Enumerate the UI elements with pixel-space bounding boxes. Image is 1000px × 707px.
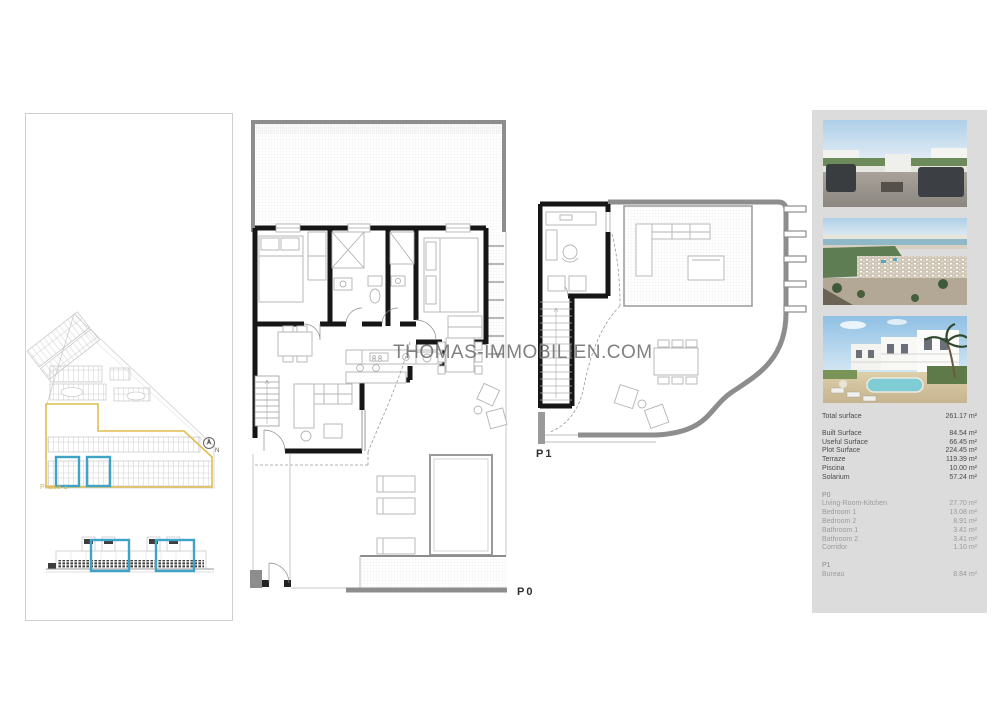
- row-label: Bedroom 1: [822, 509, 856, 518]
- p0-stairs: [255, 376, 279, 426]
- row-label: Total surface: [822, 413, 862, 422]
- site-plan-drawing: N: [26, 304, 232, 604]
- table-row: Built Surface 84.54 m²: [822, 430, 977, 439]
- table-row: Solarium 57.24 m²: [822, 474, 977, 483]
- roof-terrace-photo: [823, 120, 967, 207]
- row-value: 13.08 m²: [949, 509, 977, 518]
- row-value: 261.17 m²: [945, 413, 977, 422]
- row-label: Plot Surface: [822, 447, 860, 456]
- table-row: Total surface 261.17 m²: [822, 413, 977, 422]
- table-row: Bedroom 1 13.08 m²: [822, 509, 977, 518]
- p0-furniture: [259, 232, 482, 441]
- row-label: Built Surface: [822, 430, 862, 439]
- table-row: Living-Room-Kitchen 27.70 m²: [822, 500, 977, 509]
- aerial-coast-photo: [823, 218, 967, 305]
- surface-table: Total surface 261.17 m² Built Surface 84…: [822, 413, 977, 580]
- watermark: THOMAS-IMMOBILIEN.COM: [393, 342, 653, 364]
- row-value: 10.00 m²: [949, 465, 977, 474]
- row-value: 3.41 m²: [953, 527, 977, 536]
- row-label: Piscina: [822, 465, 845, 474]
- row-label: Bedroom 2: [822, 518, 856, 527]
- row-value: 3.41 m²: [953, 536, 977, 545]
- row-value: 8.91 m²: [953, 518, 977, 527]
- p0-pool: [430, 455, 492, 555]
- row-label: Corridor: [822, 544, 847, 553]
- table-row: Bathroom 2 3.41 m²: [822, 536, 977, 545]
- table-row: Useful Surface 66.45 m²: [822, 439, 977, 448]
- row-label: Terraze: [822, 456, 845, 465]
- table-row: Terraze 119.39 m²: [822, 456, 977, 465]
- row-value: 84.54 m²: [949, 430, 977, 439]
- p0-label: P0: [517, 586, 534, 598]
- brochure-page: N Phase 1: [0, 0, 1000, 707]
- table-row: Bathroom 1 3.41 m²: [822, 527, 977, 536]
- row-value: 66.45 m²: [949, 439, 977, 448]
- row-label: Living-Room-Kitchen: [822, 500, 887, 509]
- p1-bureau-furniture: [546, 212, 596, 291]
- row-value: 8.84 m²: [953, 571, 977, 580]
- table-row: Bureau 8.84 m²: [822, 571, 977, 580]
- row-value: 57.24 m²: [949, 474, 977, 483]
- row-label: Bureau: [822, 571, 845, 580]
- phase1-label: Phase 1: [40, 484, 68, 491]
- p0-garden: [253, 122, 505, 232]
- site-plan-panel: N: [25, 113, 233, 621]
- row-label: Bathroom 1: [822, 527, 858, 536]
- table-row: Corridor 1.10 m²: [822, 544, 977, 553]
- table-row: Bedroom 2 8.91 m²: [822, 518, 977, 527]
- row-label: Useful Surface: [822, 439, 868, 448]
- row-value: 27.70 m²: [949, 500, 977, 509]
- p1-section-header: P1: [822, 562, 977, 571]
- elevation-drawing: [46, 537, 214, 572]
- row-value: 119.39 m²: [946, 456, 977, 465]
- row-label: Solarium: [822, 474, 850, 483]
- table-row: Plot Surface 224.45 m²: [822, 447, 977, 456]
- residence-pool-photo: [823, 316, 967, 403]
- row-value: 224.45 m²: [945, 447, 977, 456]
- p0-section-header: P0: [822, 492, 977, 501]
- row-label: Bathroom 2: [822, 536, 858, 545]
- svg-text:N: N: [215, 448, 219, 454]
- p1-label: P1: [536, 448, 553, 460]
- floorplan-p1: [538, 198, 810, 448]
- info-panel: Total surface 261.17 m² Built Surface 84…: [812, 110, 987, 613]
- table-row: Piscina 10.00 m²: [822, 465, 977, 474]
- row-value: 1.10 m²: [953, 544, 977, 553]
